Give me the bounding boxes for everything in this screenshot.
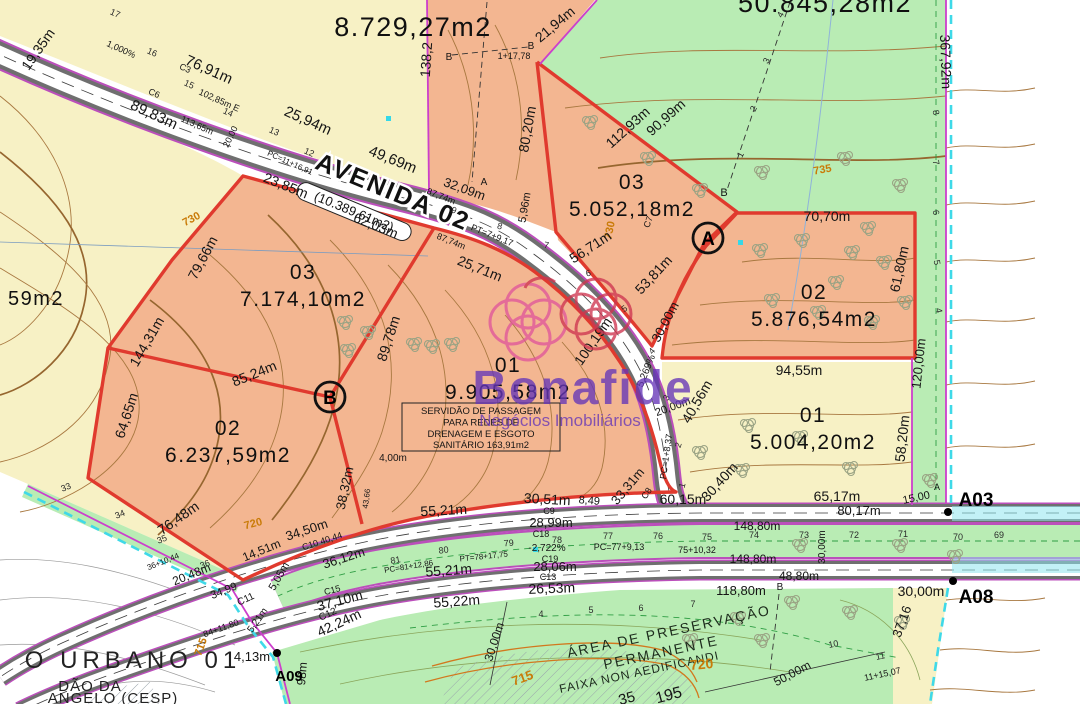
map-label: C11 [236, 591, 257, 609]
map-label: 30,00m [817, 530, 828, 563]
map-label: 70 [953, 532, 963, 542]
map-label: 1+17,78 [498, 51, 531, 61]
map-canvas: SERVIDÃO DE PASSAGEM PARA REDES DE DRENA… [0, 0, 1080, 704]
marker-b-label: B [323, 388, 337, 409]
map-label: 5.876,54m2 [751, 308, 877, 331]
map-label: 5.004,20m2 [750, 431, 876, 454]
map-label: 80 [438, 544, 449, 555]
map-label: 69 [994, 530, 1004, 540]
map-label: 148,80m [734, 519, 781, 533]
map-label: 367,92m [937, 34, 955, 89]
map-label: 77 [603, 531, 613, 541]
map-label: 80,17m [837, 503, 880, 518]
map-label: 73 [799, 530, 809, 540]
map-label: 75 [702, 532, 712, 542]
map-label: 10 [827, 638, 839, 650]
map-label: 03 [619, 171, 645, 194]
map-label: 55,21m [425, 560, 473, 579]
map-label: 72 [849, 530, 859, 540]
map-label: 30,00m [898, 583, 945, 599]
map-label: 02 [801, 281, 827, 304]
map-label: 75+10,32 [678, 545, 716, 555]
map-label: 28,99m [529, 515, 572, 530]
map-label: PC=77+9,13 [594, 542, 645, 552]
map-label: 48,80m [779, 569, 819, 583]
map-label: A03 [959, 490, 994, 511]
map-label: 118,80m [716, 583, 766, 598]
map-label: C18 [533, 529, 550, 539]
watermark-brand: Bonafide [472, 362, 693, 415]
map-label: A09 [275, 668, 303, 685]
map-label: 7 [690, 599, 695, 609]
map-label: 59m2 [8, 288, 64, 310]
map-label: ANGELO (CESP) [48, 690, 179, 704]
map-label: 71 [898, 529, 908, 539]
map-label: 8,49 [578, 494, 600, 508]
map-label: 720 [689, 655, 714, 673]
map-label: 50.845,28m2 [738, 0, 912, 18]
map-label: B [777, 582, 784, 593]
map-label: 78 [552, 535, 562, 545]
point-a08 [949, 577, 957, 585]
map-label: 76 [653, 531, 663, 541]
map-label: 55,21m [420, 501, 467, 519]
map-label: 70,70m [804, 208, 851, 224]
survey-point-cyan [738, 240, 743, 245]
map-label: 5 [588, 605, 593, 615]
map-label: 03 [290, 261, 316, 284]
map-label: 81 [390, 554, 402, 566]
point-a03 [944, 508, 952, 516]
map-label: 138,2 [417, 41, 435, 77]
map-label: 6.237,59m2 [165, 444, 291, 467]
map-label: 26,53m [528, 579, 575, 597]
map-label: 7.174,10m2 [240, 288, 366, 311]
map-label: 55,22m [433, 591, 481, 610]
map-label: 79 [503, 538, 514, 549]
map-label: 6 [638, 603, 643, 613]
map-label: 94,55m [776, 362, 823, 378]
map-label: 4,00m [379, 453, 407, 464]
survey-point-cyan [386, 116, 391, 121]
map-label: 8.729,27m2 [334, 12, 492, 42]
easement-line-4: SANITÁRIO 163,91m2 [433, 440, 529, 451]
easement-line-3: DRENAGEM E ESGOTO [428, 429, 535, 440]
map-label: B [720, 187, 727, 199]
map-label: 01 [800, 404, 826, 427]
map-label: 4 [538, 609, 543, 619]
cadastral-plat-map: SERVIDÃO DE PASSAGEM PARA REDES DE DRENA… [0, 0, 1080, 704]
map-label: A [481, 177, 488, 188]
map-label: 65,17m [814, 488, 861, 504]
map-label: 5.052,18m2 [569, 198, 695, 221]
map-label: A [934, 482, 940, 492]
map-label: 60,15m [660, 491, 707, 507]
marker-a-label: A [701, 229, 715, 250]
watermark-tagline: Negócios Imobiliários [479, 411, 641, 430]
point-a09 [273, 649, 281, 657]
map-label: 148,80m [730, 552, 777, 566]
map-label: 02 [215, 417, 241, 440]
map-label: A08 [959, 587, 994, 608]
road-end-cyan-lower [952, 557, 1080, 573]
map-label: B [446, 52, 453, 63]
map-label: O URBANO 01 [25, 647, 241, 674]
